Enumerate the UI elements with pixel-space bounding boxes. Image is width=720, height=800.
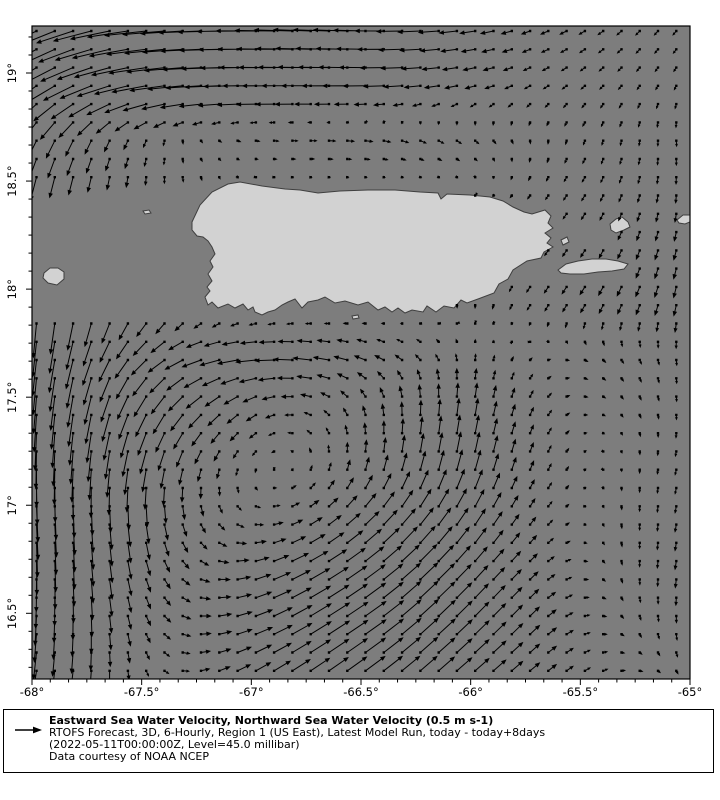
island-desecheo: [143, 210, 151, 214]
y-tick-label: 18°: [5, 279, 19, 299]
legend-box: Eastward Sea Water Velocity, Northward S…: [3, 709, 714, 773]
y-tick-label: 16.5°: [5, 598, 19, 629]
quiver-map: -68°-67.5°-67°-66.5°-66°-65.5°-65°19°18.…: [0, 0, 720, 705]
legend-credit: Data courtesy of NOAA NCEP: [49, 751, 209, 763]
x-tick-label: -65°: [678, 685, 703, 699]
x-tick-label: -68°: [20, 685, 45, 699]
x-tick-label: -67.5°: [124, 685, 160, 699]
island-cay-south: [352, 315, 359, 319]
ocean-background: [32, 26, 690, 679]
y-tick-label: 18.5°: [5, 165, 19, 196]
y-tick-label: 19°: [5, 63, 19, 83]
y-tick-label: 17°: [5, 495, 19, 515]
y-tick-label: 17.5°: [5, 382, 19, 413]
x-tick-label: -67°: [239, 685, 264, 699]
reference-arrow-icon: [12, 718, 46, 740]
x-tick-label: -66°: [458, 685, 483, 699]
x-tick-label: -66.5°: [343, 685, 379, 699]
figure: -68°-67.5°-67°-66.5°-66°-65.5°-65°19°18.…: [0, 0, 720, 800]
x-tick-label: -65.5°: [563, 685, 599, 699]
